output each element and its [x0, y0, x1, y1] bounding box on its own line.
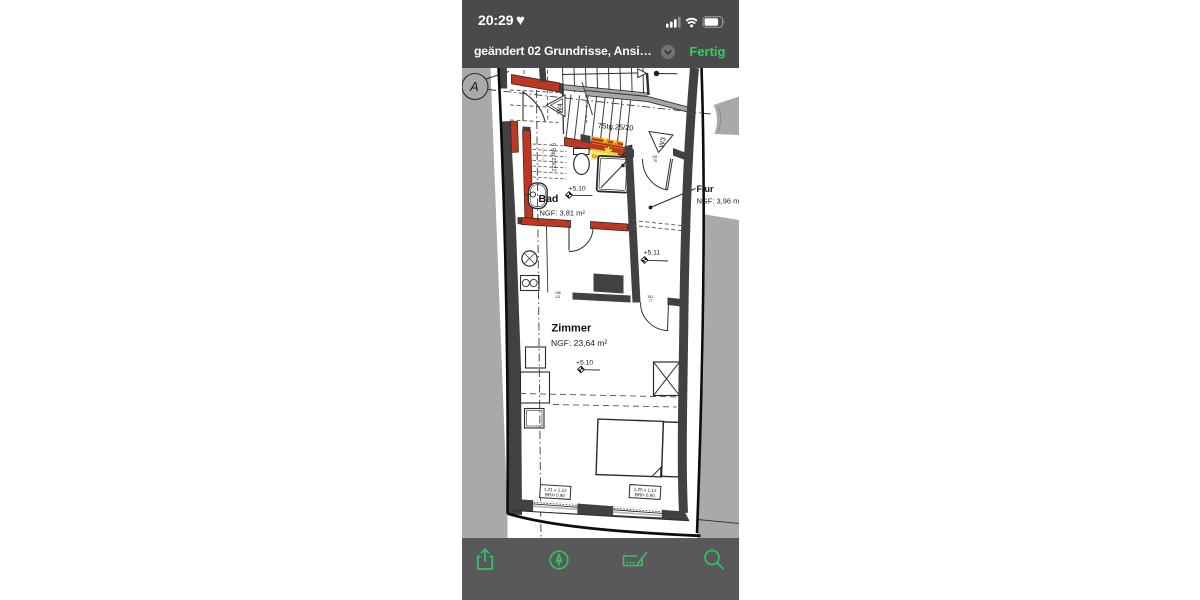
svg-text:+5.11: +5.11	[643, 250, 660, 257]
svg-text:W4: W4	[556, 103, 564, 114]
svg-text:1,01 x 1,12: 1,01 x 1,12	[541, 148, 545, 162]
svg-text:+5.10: +5.10	[568, 186, 585, 193]
svg-text:121: 121	[555, 295, 561, 299]
svg-text:+5.10: +5.10	[576, 360, 593, 367]
svg-text:NGF: 3,81 m²: NGF: 3,81 m²	[539, 209, 585, 218]
svg-text:7Stg.25/20: 7Stg.25/20	[597, 121, 633, 132]
svg-text:Zimmer: Zimmer	[551, 323, 591, 335]
svg-text:Bad: Bad	[538, 193, 558, 205]
svg-text:A: A	[469, 79, 479, 94]
svg-text:5 Stg 23/22: 5 Stg 23/22	[549, 143, 556, 172]
svg-text:NGF: 23,64 m²: NGF: 23,64 m²	[551, 338, 607, 348]
svg-text:78: 78	[653, 159, 657, 163]
svg-text:77: 77	[648, 299, 652, 303]
svg-text:W3: W3	[658, 137, 667, 149]
svg-text:Flur: Flur	[696, 184, 713, 194]
